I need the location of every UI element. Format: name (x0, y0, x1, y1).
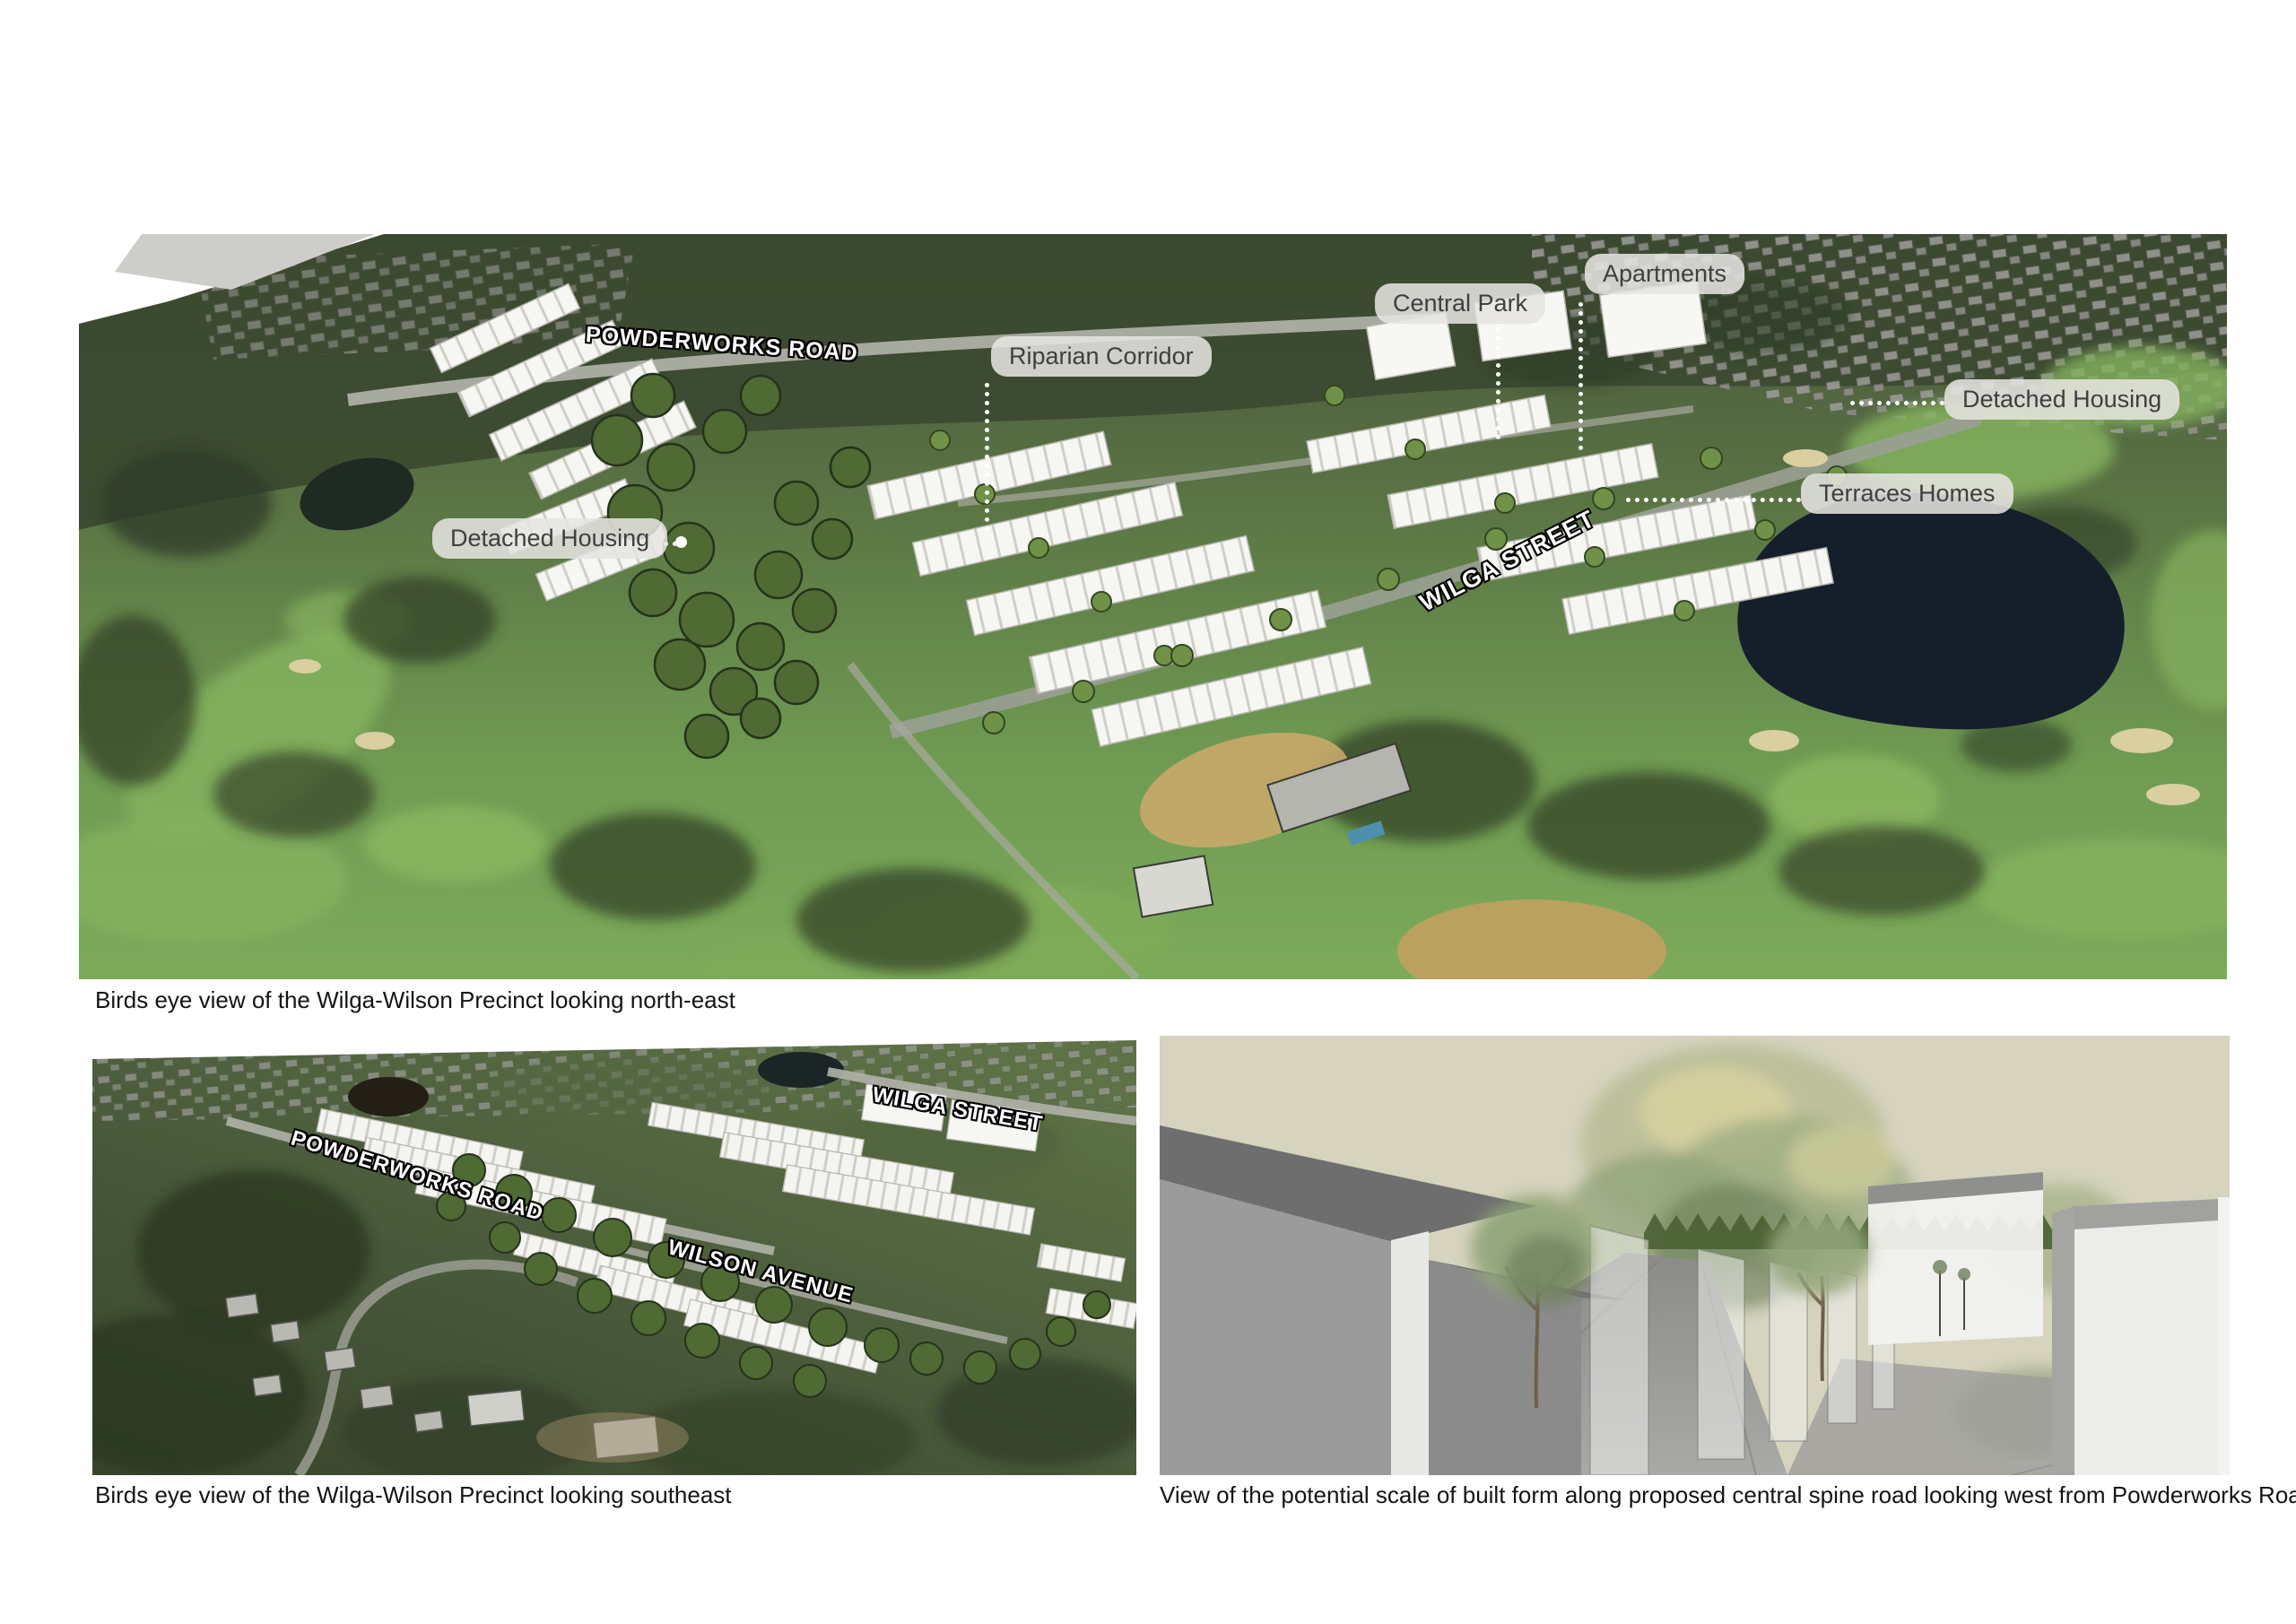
leader-detached-housing-right (1850, 401, 1944, 405)
callout-detached-housing-right: Detached Housing (1944, 379, 2179, 420)
caption-aerial-northeast: Birds eye view of the Wilga-Wilson Preci… (95, 986, 735, 1014)
leader-central-park (1496, 327, 1500, 439)
figure-street-render (1160, 1036, 2230, 1475)
callout-apartments: Apartments (1585, 254, 1744, 294)
callout-terraces-homes: Terraces Homes (1801, 473, 2013, 514)
street-render-illustration (1160, 1036, 2230, 1475)
callout-detached-housing-left: Detached Housing (432, 518, 667, 559)
leader-apartments (1578, 302, 1583, 450)
caption-street-render: View of the potential scale of built for… (1160, 1481, 2296, 1509)
leader-end-dot (675, 536, 687, 548)
caption-aerial-southeast: Birds eye view of the Wilga-Wilson Preci… (95, 1481, 732, 1509)
figure-aerial-southeast: WILGA STREET POWDERWORKS ROAD WILSON AVE… (92, 1036, 1136, 1475)
document-page: POWDERWORKS ROAD WILGA STREET Central Pa… (0, 0, 2296, 1624)
callout-central-park: Central Park (1375, 283, 1545, 324)
leader-riparian-corridor (985, 383, 989, 531)
leader-terraces-homes (1626, 498, 1801, 502)
callout-riparian-corridor: Riparian Corridor (991, 336, 1212, 377)
figure-aerial-northeast: POWDERWORKS ROAD WILGA STREET Central Pa… (79, 234, 2227, 979)
